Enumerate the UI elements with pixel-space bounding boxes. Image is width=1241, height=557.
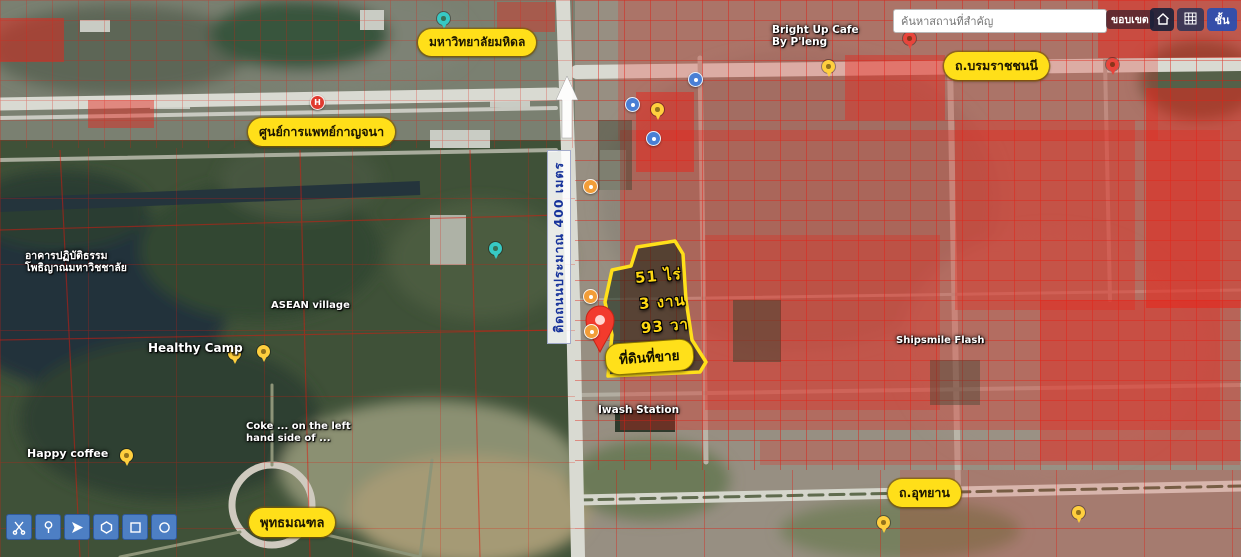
poi-pin-teal-1[interactable] xyxy=(437,12,450,25)
pill-phutthamonthon: พุทธมณฑล xyxy=(249,508,335,537)
satellite-map-canvas[interactable] xyxy=(0,0,1241,557)
tool-pan-button[interactable] xyxy=(64,514,90,540)
label-iwash-station: Iwash Station xyxy=(598,404,679,416)
poi-pin-teal-2[interactable] xyxy=(489,242,502,255)
circle-icon xyxy=(157,520,172,535)
scissors-icon xyxy=(12,520,27,535)
label-dhamma-practice-hall: อาคารปฏิบัติธรรม โพธิญาณมหาวิชชาลัย xyxy=(25,250,127,275)
label-healthy-camp: Healthy Camp xyxy=(148,341,243,355)
poi-transit-icon-3[interactable] xyxy=(646,131,661,146)
poi-fuel-icon-1[interactable] xyxy=(583,179,598,194)
label-coke-left-hand-side: Coke ... on the left hand side of ... xyxy=(246,421,351,445)
pill-utthayan-road: ถ.อุทยาน xyxy=(888,479,961,507)
map-application: H Bright Up Cafe By P'lengอาคารปฏิบัติธร… xyxy=(0,0,1241,557)
parcel-area-wa: 93 วา xyxy=(640,312,690,340)
search-input[interactable] xyxy=(893,9,1107,33)
poi-fuel-icon-2[interactable] xyxy=(583,289,598,304)
road-frontage-label: ติดถนนประมาณ 400 เมตร xyxy=(547,150,571,344)
pill-borommaratchachonnani-road: ถ.บรมราชชนนี xyxy=(944,52,1049,80)
poi-hospital-icon[interactable]: H xyxy=(310,95,325,110)
layers-button[interactable]: ชั้น xyxy=(1207,8,1237,31)
pill-mahidol-university: มหาวิทยาลัยมหิดล xyxy=(418,29,536,56)
poi-pin-red-2[interactable] xyxy=(903,32,916,45)
tool-rectangle-button[interactable] xyxy=(122,514,148,540)
home-button[interactable] xyxy=(1150,8,1174,31)
paper-plane-icon xyxy=(70,520,85,535)
poi-pin-yellow-1[interactable] xyxy=(651,103,664,116)
poi-pin-yellow-7[interactable] xyxy=(1072,506,1085,519)
label-asean-village: ASEAN village xyxy=(271,300,350,312)
home-icon xyxy=(1155,11,1170,29)
label-bright-up-cafe: Bright Up Cafe By P'leng xyxy=(772,24,859,49)
marker-pin-icon xyxy=(41,520,56,535)
tool-circle-button[interactable] xyxy=(151,514,177,540)
poi-transit-icon-1[interactable] xyxy=(625,97,640,112)
poi-pin-yellow-6[interactable] xyxy=(877,516,890,529)
poi-pin-yellow-2[interactable] xyxy=(822,60,835,73)
poi-pin-yellow-5[interactable] xyxy=(257,345,270,358)
label-shipsmile-flash: Shipsmile Flash xyxy=(896,335,984,347)
drawing-toolbar xyxy=(6,514,177,540)
rectangle-icon xyxy=(128,520,143,535)
poi-fuel-icon-3[interactable] xyxy=(584,324,599,339)
pill-kanchana-medical-center: ศูนย์การแพทย์กาญจนา xyxy=(248,118,395,146)
land-for-sale-pill: ที่ดินที่ขาย xyxy=(604,338,695,376)
poi-pin-red-1[interactable] xyxy=(1106,58,1119,71)
label-happy-coffee: Happy coffee xyxy=(27,448,108,461)
boundary-button[interactable]: ขอบเขต xyxy=(1106,10,1154,29)
tool-marker-button[interactable] xyxy=(35,514,61,540)
poi-pin-yellow-3[interactable] xyxy=(120,449,133,462)
polygon-icon xyxy=(99,520,114,535)
poi-transit-icon-2[interactable] xyxy=(688,72,703,87)
grid-basemap-icon xyxy=(1183,11,1198,29)
tool-polygon-button[interactable] xyxy=(93,514,119,540)
parcel-area-rai: 51 ไร่ xyxy=(634,262,683,290)
basemap-grid-button[interactable] xyxy=(1177,8,1204,31)
tool-scissors-button[interactable] xyxy=(6,514,32,540)
